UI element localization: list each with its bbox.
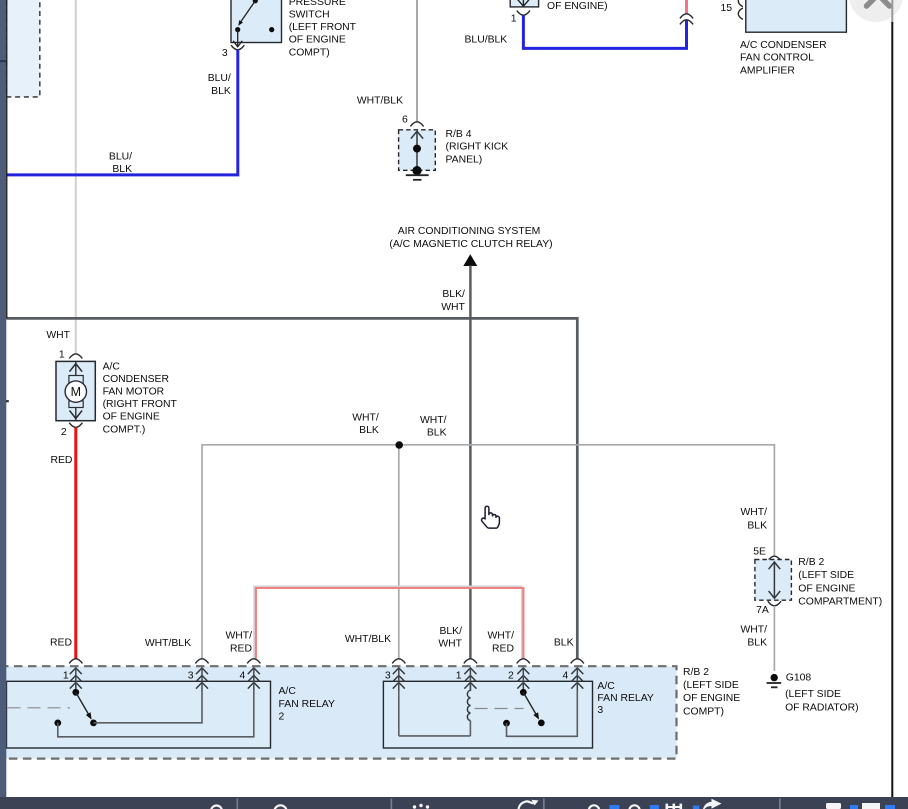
svg-text:FAN RELAY: FAN RELAY [279, 699, 335, 710]
svg-text:OF ENGINE: OF ENGINE [289, 35, 346, 46]
svg-text:7A: 7A [756, 605, 769, 616]
svg-text:6: 6 [402, 115, 408, 126]
svg-text:RED: RED [492, 644, 514, 655]
svg-text:COMPT): COMPT) [683, 706, 724, 717]
svg-text:OF ENGINE: OF ENGINE [103, 412, 160, 423]
svg-text:COMPT.): COMPT.) [103, 424, 146, 435]
svg-text:WHT/BLK: WHT/BLK [145, 638, 191, 649]
svg-text:BLK: BLK [554, 638, 574, 649]
svg-text:A/C: A/C [279, 686, 297, 697]
svg-text:4: 4 [240, 671, 246, 682]
svg-text:BLK: BLK [211, 86, 231, 97]
svg-text:BLK/: BLK/ [439, 626, 462, 637]
svg-text:R/B 2: R/B 2 [798, 557, 824, 568]
svg-text:1: 1 [456, 671, 462, 682]
svg-text:RED: RED [230, 644, 252, 655]
svg-text:WHT/: WHT/ [740, 625, 767, 636]
svg-text:FAN RELAY: FAN RELAY [597, 693, 653, 704]
svg-text:(A/C MAGNETIC CLUTCH RELAY): (A/C MAGNETIC CLUTCH RELAY) [389, 239, 552, 250]
svg-text:5E: 5E [753, 547, 766, 558]
svg-text:A/C: A/C [597, 681, 615, 692]
svg-text:WHT/BLK: WHT/BLK [357, 95, 403, 106]
svg-text:(LEFT SIDE: (LEFT SIDE [798, 570, 854, 581]
svg-text:3: 3 [597, 705, 603, 716]
svg-text:BLK: BLK [112, 164, 132, 175]
svg-text:COMPT): COMPT) [289, 47, 330, 58]
svg-text:OF ENGINE): OF ENGINE) [547, 1, 608, 12]
svg-text:SWITCH: SWITCH [289, 10, 330, 21]
svg-text:3: 3 [188, 671, 194, 682]
svg-text:OF ENGINE: OF ENGINE [798, 583, 855, 594]
svg-text:(LEFT FRONT: (LEFT FRONT [289, 22, 357, 33]
svg-text:15: 15 [720, 3, 732, 14]
svg-text:FAN CONTROL: FAN CONTROL [740, 53, 814, 64]
svg-text:3: 3 [385, 671, 391, 682]
svg-text:PRESSURE: PRESSURE [289, 0, 346, 8]
svg-text:BLK: BLK [359, 425, 379, 436]
svg-text:(LEFT SIDE: (LEFT SIDE [785, 689, 841, 700]
svg-text:BLU/: BLU/ [208, 73, 231, 84]
svg-text:WHT/BLK: WHT/BLK [345, 634, 391, 645]
svg-text:2: 2 [279, 712, 285, 723]
svg-text:2: 2 [508, 671, 514, 682]
svg-text:R/B 2: R/B 2 [683, 667, 709, 678]
svg-text:AMPLIFIER: AMPLIFIER [740, 65, 795, 76]
svg-text:RED: RED [50, 455, 72, 466]
svg-text:BLK: BLK [747, 520, 767, 531]
svg-text:1: 1 [511, 14, 517, 25]
svg-text:WHT/: WHT/ [352, 413, 379, 424]
svg-text:WHT/: WHT/ [225, 631, 252, 642]
svg-text:PANEL): PANEL) [446, 155, 483, 166]
svg-text:M: M [71, 385, 81, 399]
svg-text:(RIGHT FRONT: (RIGHT FRONT [103, 399, 178, 410]
svg-text:OF RADIATOR): OF RADIATOR) [785, 703, 859, 714]
svg-text:FAN MOTOR: FAN MOTOR [103, 387, 165, 398]
svg-text:WHT: WHT [438, 638, 462, 649]
svg-text:BLK: BLK [747, 638, 767, 649]
svg-text:1: 1 [59, 350, 65, 361]
svg-text:BLU/BLK: BLU/BLK [465, 35, 508, 46]
svg-text:1: 1 [63, 671, 69, 682]
svg-text:2: 2 [61, 427, 67, 438]
svg-text:AIR CONDITIONING SYSTEM: AIR CONDITIONING SYSTEM [398, 226, 541, 237]
svg-text:BLU/: BLU/ [109, 152, 132, 163]
svg-text:WHT: WHT [441, 302, 465, 313]
svg-text:G108: G108 [786, 673, 812, 684]
svg-text:OF ENGINE: OF ENGINE [683, 693, 740, 704]
svg-text:(LEFT SIDE: (LEFT SIDE [683, 680, 739, 691]
svg-text:3: 3 [222, 48, 228, 59]
svg-text:WHT/: WHT/ [420, 415, 447, 426]
svg-text:(RIGHT KICK: (RIGHT KICK [446, 142, 509, 153]
svg-text:CONDENSER: CONDENSER [103, 374, 170, 385]
svg-text:A/C: A/C [103, 362, 121, 373]
svg-text:A/C CONDENSER: A/C CONDENSER [740, 40, 827, 51]
svg-text:WHT/: WHT/ [740, 507, 767, 518]
svg-text:BLK: BLK [427, 428, 447, 439]
svg-text:COMPARTMENT): COMPARTMENT) [798, 597, 882, 608]
svg-text:R/B 4: R/B 4 [446, 129, 472, 140]
svg-text:BLK/: BLK/ [442, 289, 465, 300]
svg-text:WHT/: WHT/ [487, 631, 514, 642]
svg-text:RED: RED [50, 638, 72, 649]
svg-text:4: 4 [563, 671, 569, 682]
svg-text:WHT: WHT [46, 330, 70, 341]
